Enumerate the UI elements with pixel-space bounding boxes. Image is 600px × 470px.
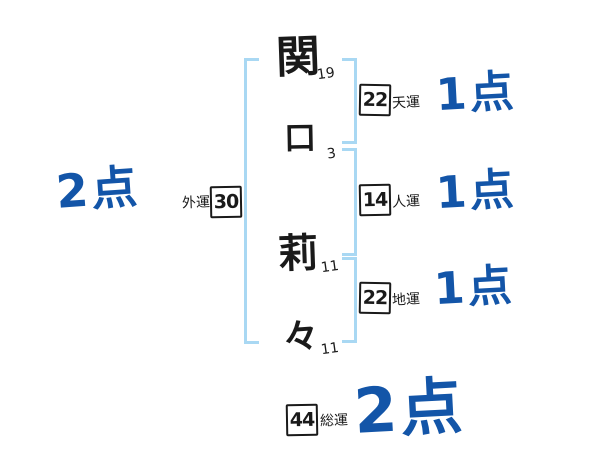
- soun-label: 総運: [320, 414, 348, 429]
- jinun-value-box: 14: [359, 184, 392, 217]
- chiun-bracket: [342, 257, 357, 343]
- soun-score: 2点: [352, 375, 466, 443]
- gaiun-value-box: 30: [210, 186, 243, 219]
- stroke-count-1: 19: [316, 66, 336, 82]
- name-char-1: 関: [275, 35, 321, 81]
- tenun-bracket: [342, 58, 357, 144]
- gaiun-label: 外運: [182, 196, 210, 211]
- name-char-4: 々: [282, 319, 320, 357]
- chiun-value-box: 22: [359, 282, 392, 315]
- tenun-label: 天運: [392, 95, 421, 110]
- tenun-score: 1点: [435, 70, 518, 118]
- tenun-value-box: 22: [359, 84, 392, 117]
- stroke-count-2: 3: [326, 146, 337, 161]
- name-char-3: 莉: [277, 233, 318, 274]
- gaiun-score: 2点: [54, 163, 141, 215]
- jinun-score: 1点: [435, 168, 518, 216]
- gaiun-bracket: [244, 58, 259, 344]
- name-char-2: 口: [284, 122, 317, 155]
- stroke-count-3: 11: [320, 259, 340, 275]
- jinun-label: 人運: [392, 194, 421, 209]
- chiun-label: 地運: [392, 292, 421, 307]
- chiun-score: 1点: [433, 264, 516, 312]
- jinun-bracket: [342, 148, 357, 256]
- soun-value-box: 44: [286, 404, 319, 437]
- name-fortune-chart: 関 19 口 3 莉 11 々 11 22 天運 14 人運 22 地運 外運 …: [0, 0, 600, 470]
- stroke-count-4: 11: [320, 341, 340, 357]
